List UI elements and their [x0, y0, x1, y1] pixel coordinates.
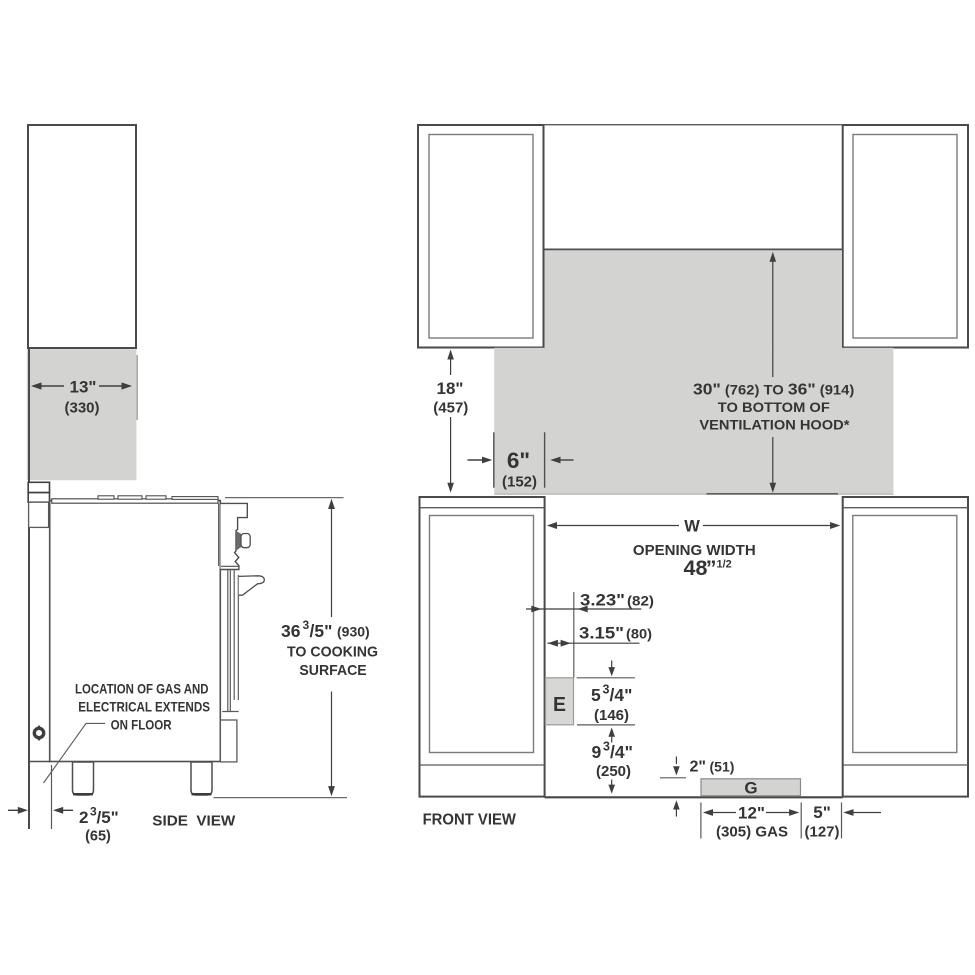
- svg-text:13": 13": [70, 378, 97, 397]
- svg-text:W: W: [684, 518, 700, 536]
- svg-text:1/2: 1/2: [717, 559, 732, 571]
- svg-text:(127): (127): [804, 824, 839, 841]
- svg-text:2: 2: [79, 808, 88, 827]
- svg-text:E: E: [553, 694, 566, 716]
- svg-text:ON FLOOR: ON FLOOR: [111, 718, 172, 733]
- svg-text:9: 9: [592, 742, 602, 762]
- svg-text:(80): (80): [626, 626, 652, 642]
- svg-text:TO BOTTOM OF: TO BOTTOM OF: [718, 399, 830, 415]
- svg-text:(152): (152): [502, 474, 537, 491]
- svg-text:(930): (930): [337, 624, 370, 640]
- svg-text:3.15": 3.15": [579, 625, 624, 643]
- svg-text:(305) GAS: (305) GAS: [716, 824, 788, 841]
- svg-text:(82): (82): [627, 593, 654, 609]
- svg-text:3.23": 3.23": [580, 592, 625, 610]
- svg-text:5: 5: [591, 685, 601, 705]
- svg-text:3: 3: [603, 740, 610, 754]
- svg-text:(250): (250): [596, 763, 631, 780]
- svg-text:SIDE VIEW: SIDE VIEW: [152, 813, 236, 830]
- svg-text:2": 2": [690, 759, 706, 776]
- svg-text:/5": /5": [310, 621, 333, 641]
- svg-text:5": 5": [813, 803, 831, 822]
- svg-text:G: G: [744, 779, 757, 798]
- svg-text:/4": /4": [610, 685, 633, 705]
- svg-text:(146): (146): [594, 707, 629, 724]
- svg-text:ELECTRICAL EXTENDS: ELECTRICAL EXTENDS: [78, 700, 210, 715]
- svg-text:(65): (65): [85, 829, 111, 845]
- svg-text:(51): (51): [710, 759, 735, 775]
- svg-text:12": 12": [738, 804, 765, 823]
- svg-text:”: ”: [706, 556, 717, 580]
- svg-text:48: 48: [684, 556, 708, 580]
- svg-text:/5": /5": [97, 808, 119, 827]
- svg-text:18": 18": [437, 379, 464, 398]
- svg-text:/4": /4": [610, 742, 633, 762]
- svg-text:6": 6": [507, 448, 530, 473]
- svg-text:3: 3: [603, 683, 610, 697]
- svg-text:36: 36: [281, 621, 301, 641]
- svg-text:(330): (330): [64, 400, 99, 417]
- svg-text:TO COOKING: TO COOKING: [287, 644, 378, 661]
- svg-text:SURFACE: SURFACE: [299, 662, 366, 679]
- svg-text:FRONT VIEW: FRONT VIEW: [423, 812, 517, 829]
- svg-text:3: 3: [303, 618, 310, 632]
- svg-text:30" (762) TO 36" (914): 30" (762) TO 36" (914): [693, 382, 854, 399]
- svg-text:(457): (457): [433, 400, 468, 417]
- svg-text:LOCATION OF GAS AND: LOCATION OF GAS AND: [75, 682, 209, 697]
- svg-text:VENTILATION HOOD*: VENTILATION HOOD*: [699, 417, 850, 433]
